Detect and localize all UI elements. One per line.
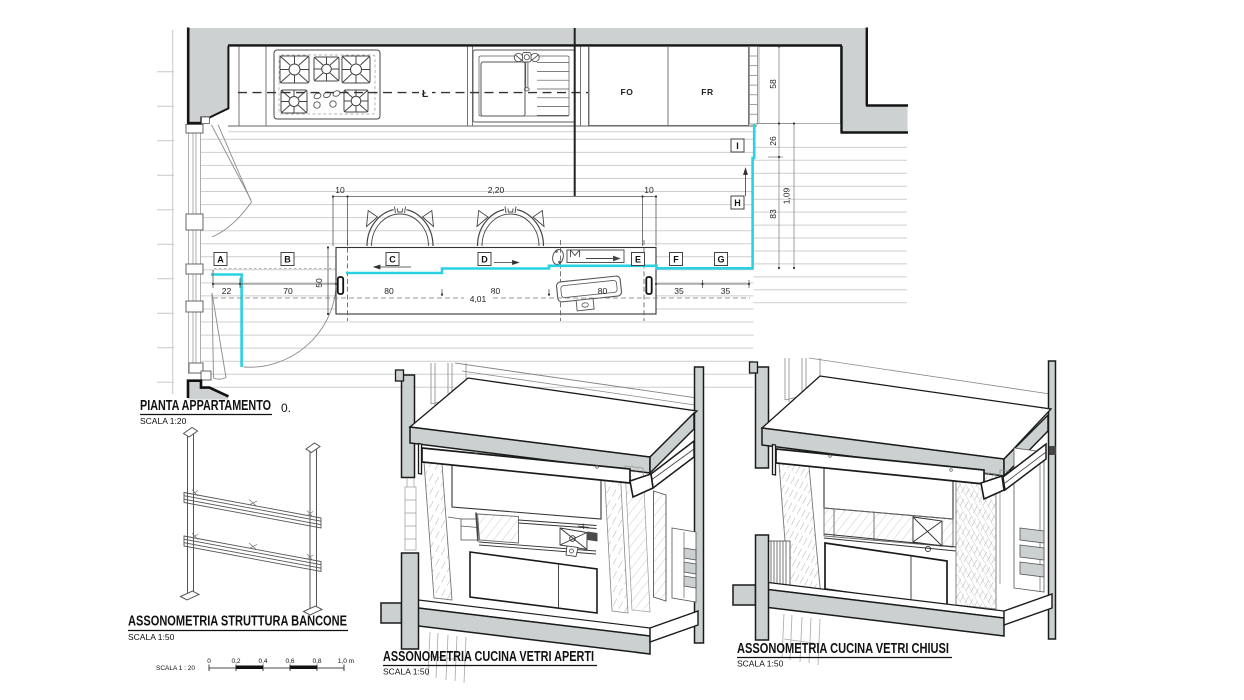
- svg-text:35: 35: [674, 286, 684, 296]
- svg-text:SCALA 1:20: SCALA 1:20: [140, 416, 187, 426]
- svg-text:0.: 0.: [281, 401, 291, 415]
- svg-text:1,09: 1,09: [782, 187, 792, 204]
- svg-text:2,20: 2,20: [488, 185, 505, 195]
- svg-text:0,2: 0,2: [231, 658, 240, 665]
- svg-text:I: I: [736, 141, 739, 151]
- svg-text:H: H: [734, 198, 741, 208]
- svg-text:SCALA 1:50: SCALA 1:50: [128, 632, 175, 642]
- svg-text:26: 26: [768, 136, 778, 146]
- svg-text:F: F: [673, 255, 679, 265]
- svg-text:SCALA 1:50: SCALA 1:50: [737, 659, 784, 669]
- svg-text:E: E: [635, 255, 641, 265]
- svg-text:FO: FO: [620, 87, 633, 97]
- svg-text:1,0 m: 1,0 m: [338, 658, 354, 665]
- svg-text:0,8: 0,8: [312, 658, 321, 665]
- svg-text:SCALA 1:50: SCALA 1:50: [383, 667, 430, 677]
- svg-text:SCALA 1 : 20: SCALA 1 : 20: [156, 665, 195, 672]
- svg-text:B: B: [284, 255, 291, 265]
- svg-text:50: 50: [314, 278, 324, 288]
- svg-text:FR: FR: [701, 87, 714, 97]
- svg-text:0: 0: [207, 658, 211, 665]
- svg-text:83: 83: [768, 209, 778, 219]
- svg-text:35: 35: [721, 286, 731, 296]
- svg-text:Ł: Ł: [422, 89, 428, 100]
- svg-text:A: A: [217, 255, 224, 265]
- svg-text:80: 80: [598, 286, 608, 296]
- svg-text:70: 70: [283, 286, 293, 296]
- svg-text:58: 58: [768, 79, 778, 89]
- svg-text:ASSONOMETRIA CUCINA VETRI APER: ASSONOMETRIA CUCINA VETRI APERTI: [383, 649, 594, 665]
- svg-text:ASSONOMETRIA CUCINA VETRI CHIU: ASSONOMETRIA CUCINA VETRI CHIUSI: [737, 641, 949, 657]
- svg-text:0,6: 0,6: [285, 658, 294, 665]
- svg-text:ASSONOMETRIA STRUTTURA BANCONE: ASSONOMETRIA STRUTTURA BANCONE: [128, 614, 347, 630]
- svg-text:4,01: 4,01: [470, 294, 487, 304]
- svg-text:0,4: 0,4: [258, 658, 267, 665]
- svg-text:C: C: [389, 255, 396, 265]
- svg-text:22: 22: [222, 286, 232, 296]
- svg-text:D: D: [481, 255, 488, 265]
- svg-text:10: 10: [644, 185, 654, 195]
- svg-text:PIANTA APPARTAMENTO: PIANTA APPARTAMENTO: [140, 398, 271, 414]
- svg-text:G: G: [717, 255, 724, 265]
- svg-text:10: 10: [335, 185, 345, 195]
- svg-text:80: 80: [384, 286, 394, 296]
